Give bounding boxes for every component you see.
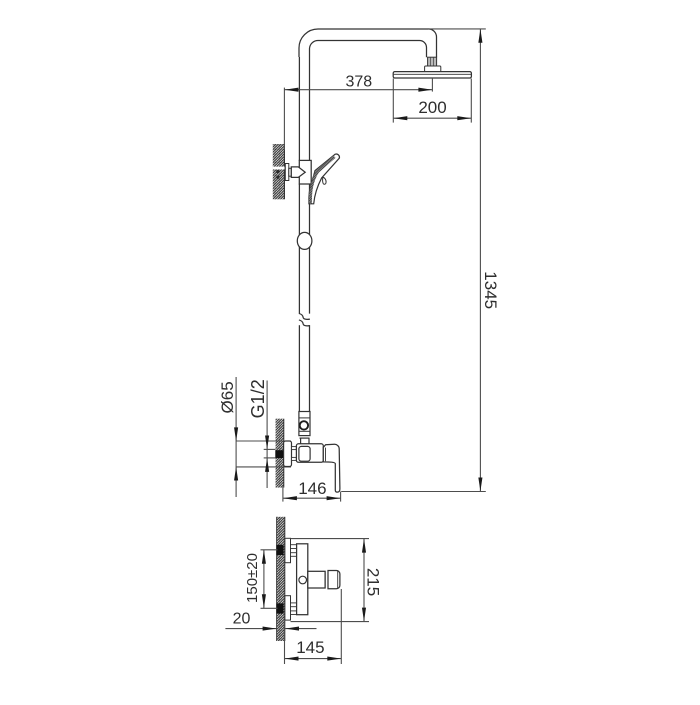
svg-text:215: 215 [363,568,382,596]
svg-text:20: 20 [233,610,251,627]
svg-text:G1/2: G1/2 [248,379,268,418]
svg-text:1345: 1345 [481,271,500,309]
svg-text:Ø65: Ø65 [218,381,237,413]
svg-text:145: 145 [296,638,324,657]
svg-text:146: 146 [298,479,326,498]
svg-text:150±20: 150±20 [244,553,261,603]
svg-text:378: 378 [345,73,372,90]
svg-text:200: 200 [418,98,446,117]
